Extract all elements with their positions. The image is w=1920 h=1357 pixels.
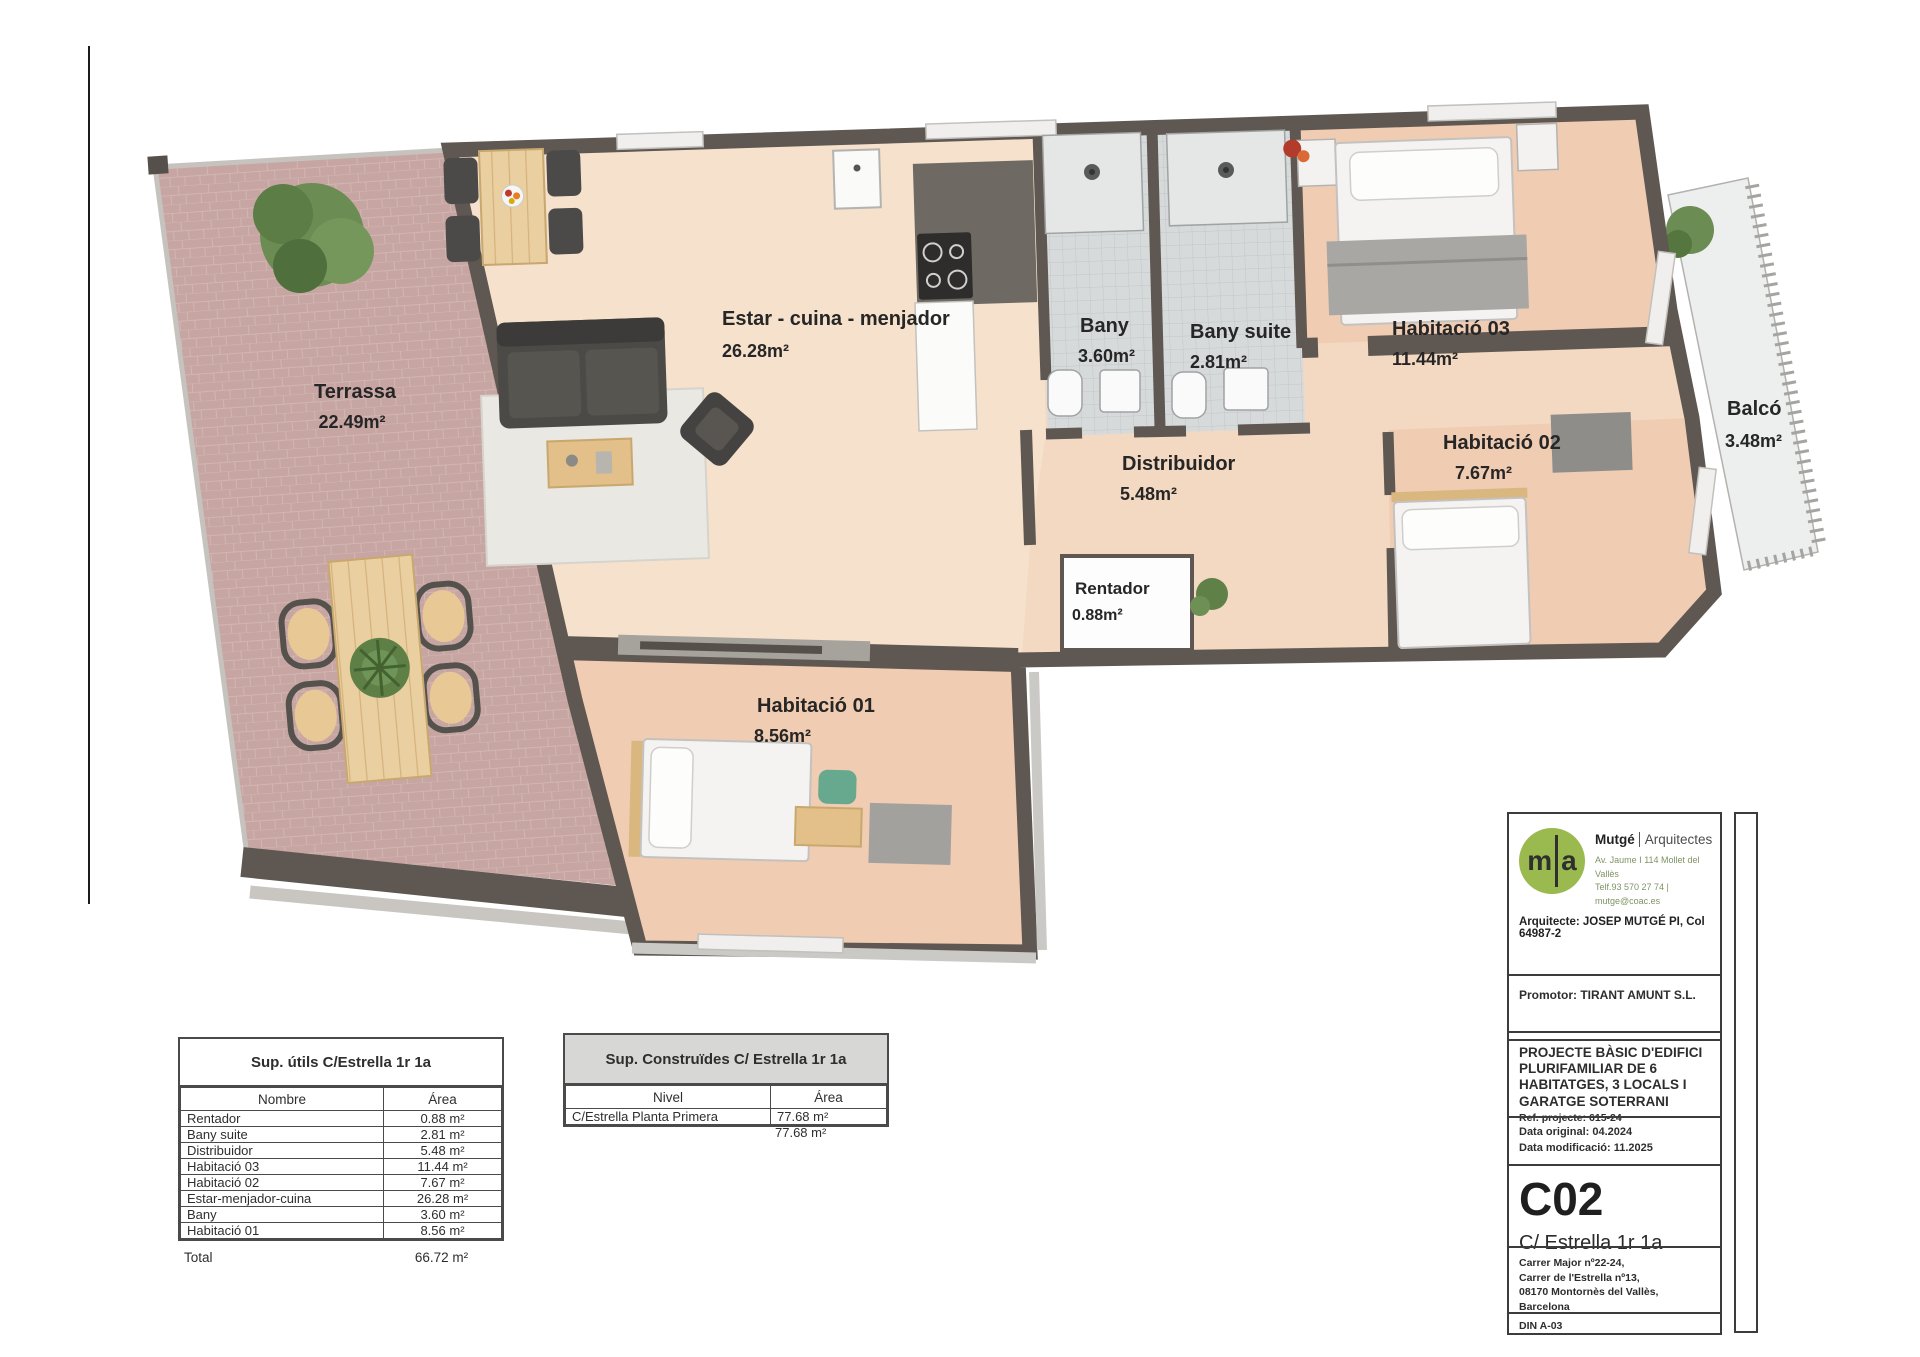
site-address-line: Carrer de l'Estrella nº13,: [1519, 1271, 1710, 1286]
useful-areas-grid: Nombre Área Rentador0.88 m² Bany suite2.…: [180, 1087, 502, 1239]
room-label-balco: Balcó: [1727, 398, 1781, 420]
table-row: Estar-menjador-cuina26.28 m²: [181, 1191, 502, 1207]
date-original: Data original: 04.2024: [1519, 1126, 1710, 1138]
table-header-row: Nombre Área: [181, 1088, 502, 1111]
room-label-habitacio-02: Habitació 02: [1443, 432, 1561, 454]
room-label-terrassa: Terrassa: [314, 381, 397, 403]
room-area-habitacio-01: 8.56m²: [754, 726, 811, 746]
shower: [1167, 130, 1288, 226]
room-area-cell: 8.56 m²: [384, 1223, 502, 1239]
logo-letter-a: a: [1561, 847, 1577, 875]
terrace-chair: [422, 664, 479, 732]
built-areas-grid: Nivel Área C/Estrella Planta Primera 77.…: [565, 1085, 887, 1125]
terrace-chair: [280, 600, 337, 668]
dining-chair: [443, 157, 479, 204]
room-label-distribuidor: Distribuidor: [1122, 453, 1236, 475]
blanket: [1327, 234, 1529, 315]
title-block-spacer: [1509, 1031, 1720, 1039]
title-block-firm-section: m a MutgéArquitectes Av. Jaume I 114 Mol…: [1509, 814, 1720, 974]
room-area-habitacio-03: 11.44m²: [1392, 349, 1458, 369]
room-area-balco: 3.48m²: [1725, 431, 1782, 451]
total-value: 66.72 m²: [383, 1250, 500, 1265]
dining-chair: [445, 215, 481, 262]
pillow: [1349, 147, 1499, 200]
room-name-cell: Habitació 02: [181, 1175, 384, 1191]
firm-address: Av. Jaume I 114 Mollet del Vallès: [1595, 854, 1715, 881]
table-row: Habitació 018.56 m²: [181, 1223, 502, 1239]
fruit-bowl: [501, 185, 524, 208]
built-areas-total: 77.68 m²: [775, 1125, 826, 1140]
room-label-habitacio-03: Habitació 03: [1392, 318, 1510, 340]
total-label: Total: [178, 1250, 383, 1265]
column-header-nombre: Nombre: [181, 1088, 384, 1111]
sheet-code: C02: [1519, 1176, 1710, 1222]
logo-divider: [1555, 835, 1558, 887]
room-area-distribuidor: 5.48m²: [1120, 484, 1177, 504]
table-row: C/Estrella Planta Primera 77.68 m²: [566, 1109, 887, 1125]
site-address-line: 08170 Montornès del Vallès, Barcelona: [1519, 1285, 1710, 1314]
sofa: [496, 317, 668, 429]
pillow: [649, 747, 694, 848]
level-area-cell: 77.68 m²: [771, 1109, 887, 1125]
laundry-box: [1062, 556, 1192, 650]
table-row: Habitació 027.67 m²: [181, 1175, 502, 1191]
room-area-bany-suite: 2.81m²: [1190, 352, 1247, 372]
room-area-cell: 26.28 m²: [384, 1191, 502, 1207]
cooktop: [917, 232, 973, 300]
fold-strip: [1734, 812, 1758, 1333]
paper-format: DIN A-03: [1509, 1312, 1720, 1337]
sheet-code-section: C02 C/ Estrella 1r 1a: [1509, 1164, 1720, 1246]
wardrobe: [1551, 412, 1633, 473]
room-name-cell: Habitació 01: [181, 1223, 384, 1239]
room-label-estar: Estar - cuina - menjador: [722, 308, 950, 330]
room-label-bany: Bany: [1080, 315, 1130, 337]
firm-name-main: Mutgé: [1595, 832, 1635, 847]
project-section: PROJECTE BÀSIC D'EDIFICI PLURIFAMILIAR D…: [1509, 1039, 1720, 1116]
room-label-bany-suite: Bany suite: [1190, 321, 1291, 343]
dining-chair: [546, 150, 582, 197]
terrace-chair: [287, 681, 344, 749]
site-address-section: Carrer Major nº22-24, Carrer de l'Estrel…: [1509, 1246, 1720, 1312]
architect-line: Arquitecte: JOSEP MUTGÉ PI, Col 64987-2: [1519, 916, 1714, 940]
room-area-cell: 2.81 m²: [384, 1127, 502, 1143]
room-area-cell: 5.48 m²: [384, 1143, 502, 1159]
date-modified: Data modificació: 11.2025: [1519, 1142, 1710, 1154]
firm-name: MutgéArquitectes: [1595, 832, 1715, 847]
terrace-chair: [415, 582, 472, 650]
desk-chair: [818, 770, 857, 805]
room-name-cell: Distribuidor: [181, 1143, 384, 1159]
room-area-cell: 0.88 m²: [384, 1111, 502, 1127]
room-label-habitacio-01: Habitació 01: [757, 695, 875, 717]
project-title: PROJECTE BÀSIC D'EDIFICI PLURIFAMILIAR D…: [1519, 1045, 1710, 1110]
room-area-habitacio-02: 7.67m²: [1455, 463, 1512, 483]
dining-chair: [548, 208, 584, 255]
room-area-bany: 3.60m²: [1078, 346, 1135, 366]
window: [617, 132, 703, 150]
table-row: Rentador0.88 m²: [181, 1111, 502, 1127]
window: [1428, 102, 1556, 121]
washbasin: [1224, 368, 1268, 410]
kitchen-sink: [833, 149, 881, 208]
coffee-table: [547, 439, 633, 488]
nightstand: [1517, 123, 1559, 170]
firm-logo: m a: [1519, 828, 1585, 894]
promoter-line: Promotor: TIRANT AMUNT S.L.: [1509, 974, 1720, 1031]
title-block: m a MutgéArquitectes Av. Jaume I 114 Mol…: [1507, 812, 1722, 1335]
room-area-cell: 7.67 m²: [384, 1175, 502, 1191]
room-name-cell: Bany: [181, 1207, 384, 1223]
table-row: Bany3.60 m²: [181, 1207, 502, 1223]
useful-areas-table: Sup. útils C/Estrella 1r 1a Nombre Área …: [178, 1037, 504, 1241]
built-areas-table: Sup. Construïdes C/ Estrella 1r 1a Nivel…: [563, 1033, 889, 1127]
table-row: Bany suite2.81 m²: [181, 1127, 502, 1143]
nightstand: [1297, 139, 1337, 186]
washbasin: [1100, 370, 1140, 412]
room-area-estar: 26.28m²: [722, 341, 789, 361]
window: [698, 934, 843, 953]
site-address-line: Carrer Major nº22-24,: [1519, 1256, 1710, 1271]
firm-contact: Telf.93 570 27 74 | mutge@coac.es: [1595, 881, 1715, 908]
toilet: [1172, 372, 1206, 418]
wall-corner-marker: [147, 155, 168, 174]
room-name-cell: Rentador: [181, 1111, 384, 1127]
level-name-cell: C/Estrella Planta Primera: [566, 1109, 771, 1125]
column-header-area: Área: [771, 1086, 887, 1109]
built-areas-table-title: Sup. Construïdes C/ Estrella 1r 1a: [565, 1035, 887, 1085]
shower: [1042, 132, 1143, 233]
table-row: Distribuidor5.48 m²: [181, 1143, 502, 1159]
room-name-cell: Bany suite: [181, 1127, 384, 1143]
toilet: [1048, 370, 1082, 416]
useful-areas-total-row: Total 66.72 m²: [178, 1250, 500, 1265]
desk: [795, 807, 862, 847]
room-area-cell: 3.60 m²: [384, 1207, 502, 1223]
table-row: Habitació 0311.44 m²: [181, 1159, 502, 1175]
firm-name-kind: Arquitectes: [1639, 832, 1713, 847]
column-header-area: Área: [384, 1088, 502, 1111]
column-header-nivel: Nivel: [566, 1086, 771, 1109]
table-header-row: Nivel Área: [566, 1086, 887, 1109]
room-name-cell: Habitació 03: [181, 1159, 384, 1175]
drawing-sheet: Terrassa 22.49m² Estar - cuina - menjado…: [0, 0, 1920, 1357]
room-name-cell: Estar-menjador-cuina: [181, 1191, 384, 1207]
room-area-terrassa: 22.49m²: [318, 412, 385, 432]
floor-mat: [868, 803, 952, 865]
logo-letter-m: m: [1527, 847, 1552, 875]
room-label-rentador: Rentador: [1075, 579, 1150, 598]
room-area-rentador: 0.88m²: [1072, 607, 1123, 624]
useful-areas-table-title: Sup. útils C/Estrella 1r 1a: [180, 1039, 502, 1087]
dates-section: Data original: 04.2024 Data modificació:…: [1509, 1116, 1720, 1164]
room-area-cell: 11.44 m²: [384, 1159, 502, 1175]
pillow: [1402, 506, 1519, 550]
window: [926, 120, 1056, 139]
